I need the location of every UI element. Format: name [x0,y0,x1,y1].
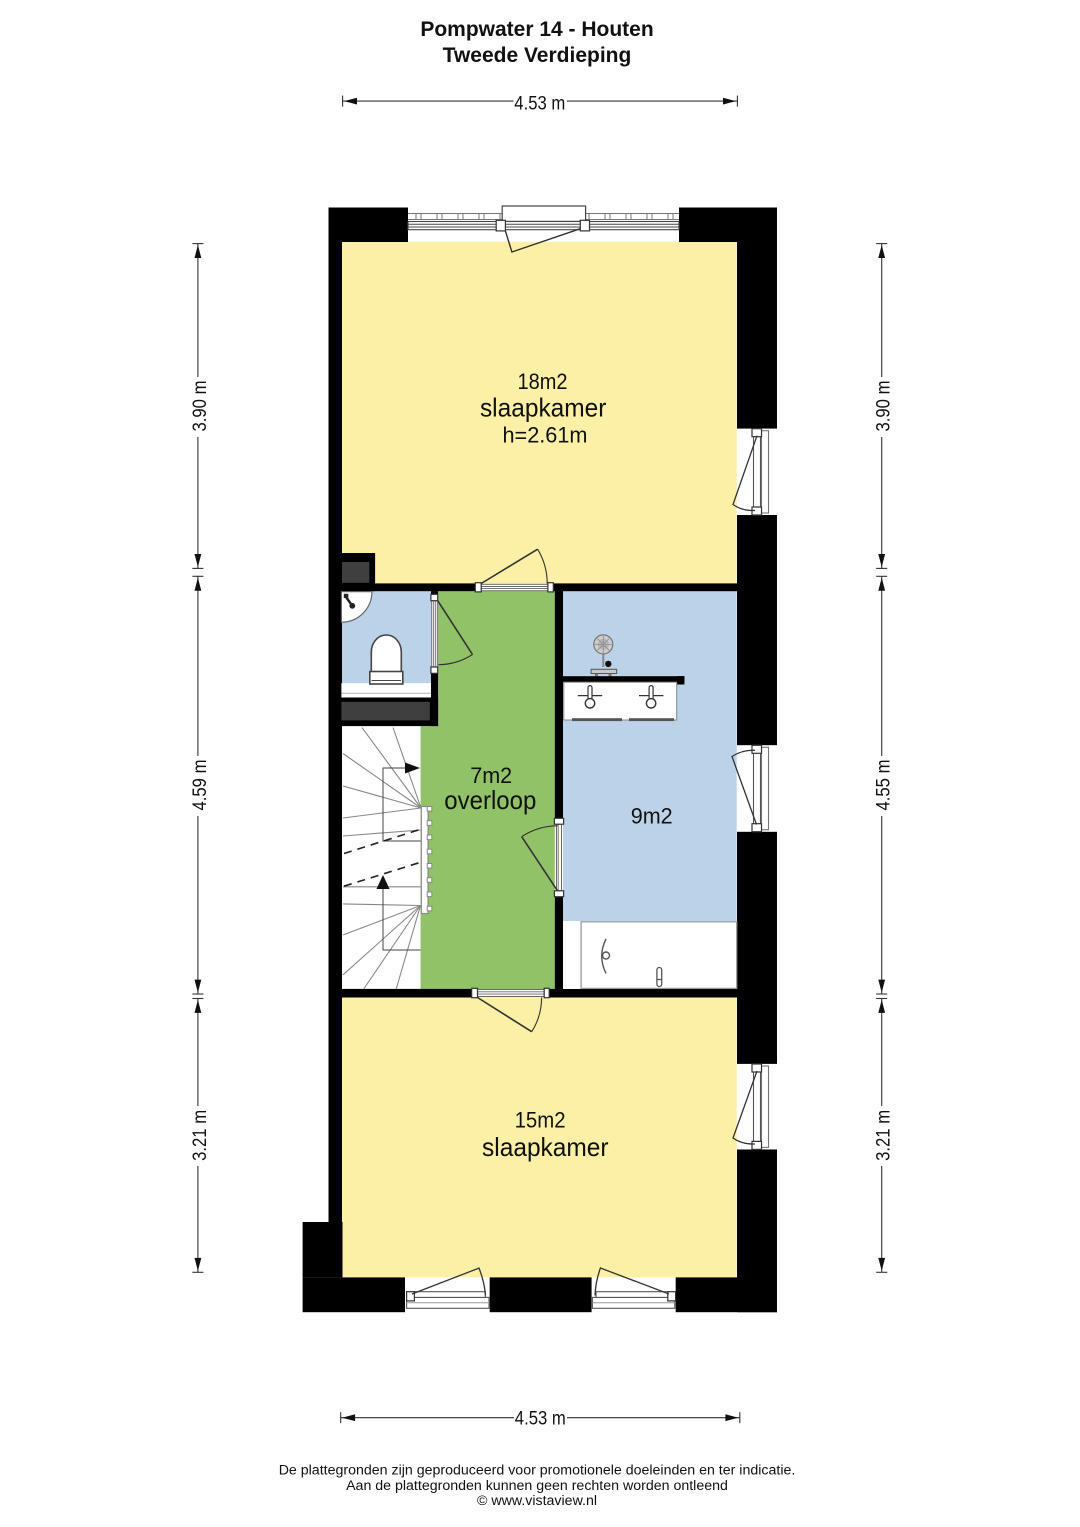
svg-text:De plattegronden zijn geproduc: De plattegronden zijn geproduceerd voor … [279,1463,796,1479]
svg-text:4.53 m: 4.53 m [514,94,565,115]
svg-text:overloop: overloop [444,785,536,815]
svg-text:4.55 m: 4.55 m [874,760,895,811]
svg-text:18m2: 18m2 [518,369,568,394]
svg-text:3.90 m: 3.90 m [190,381,211,432]
svg-text:h=2.61m: h=2.61m [503,423,588,448]
svg-text:© www.vistaview.nl: © www.vistaview.nl [477,1493,597,1509]
svg-text:3.21 m: 3.21 m [874,1110,895,1161]
svg-text:3.21 m: 3.21 m [190,1110,211,1161]
svg-text:3.90 m: 3.90 m [874,381,895,432]
svg-text:4.53 m: 4.53 m [515,1409,566,1430]
svg-text:Tweede Verdieping: Tweede Verdieping [443,44,632,67]
svg-text:9m2: 9m2 [631,803,673,828]
svg-text:Aan de plattegronden kunnen ge: Aan de plattegronden kunnen geen rechten… [346,1478,728,1494]
svg-text:slaapkamer: slaapkamer [482,1132,609,1162]
svg-text:Pompwater 14 - Houten: Pompwater 14 - Houten [420,18,653,41]
svg-text:slaapkamer: slaapkamer [480,392,607,422]
svg-text:15m2: 15m2 [515,1108,566,1133]
svg-text:4.59 m: 4.59 m [190,760,211,811]
